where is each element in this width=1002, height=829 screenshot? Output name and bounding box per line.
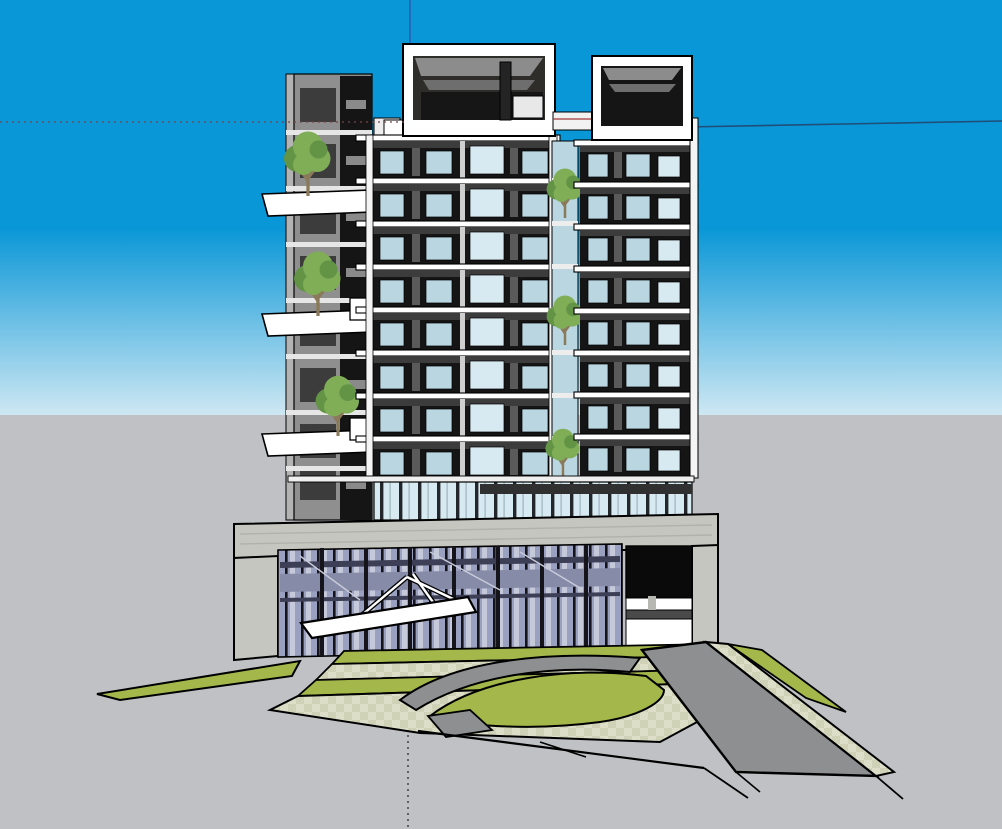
podium (234, 514, 718, 660)
podium-left-pier (234, 556, 278, 660)
model-viewport[interactable] (0, 0, 1002, 829)
garage-opening (626, 546, 692, 654)
right-rooftop-pavilion (592, 56, 692, 140)
right-tower (574, 56, 698, 478)
central-rooftop-pavilion (403, 44, 555, 136)
scene-canvas[interactable] (0, 0, 1002, 829)
building (234, 44, 718, 660)
